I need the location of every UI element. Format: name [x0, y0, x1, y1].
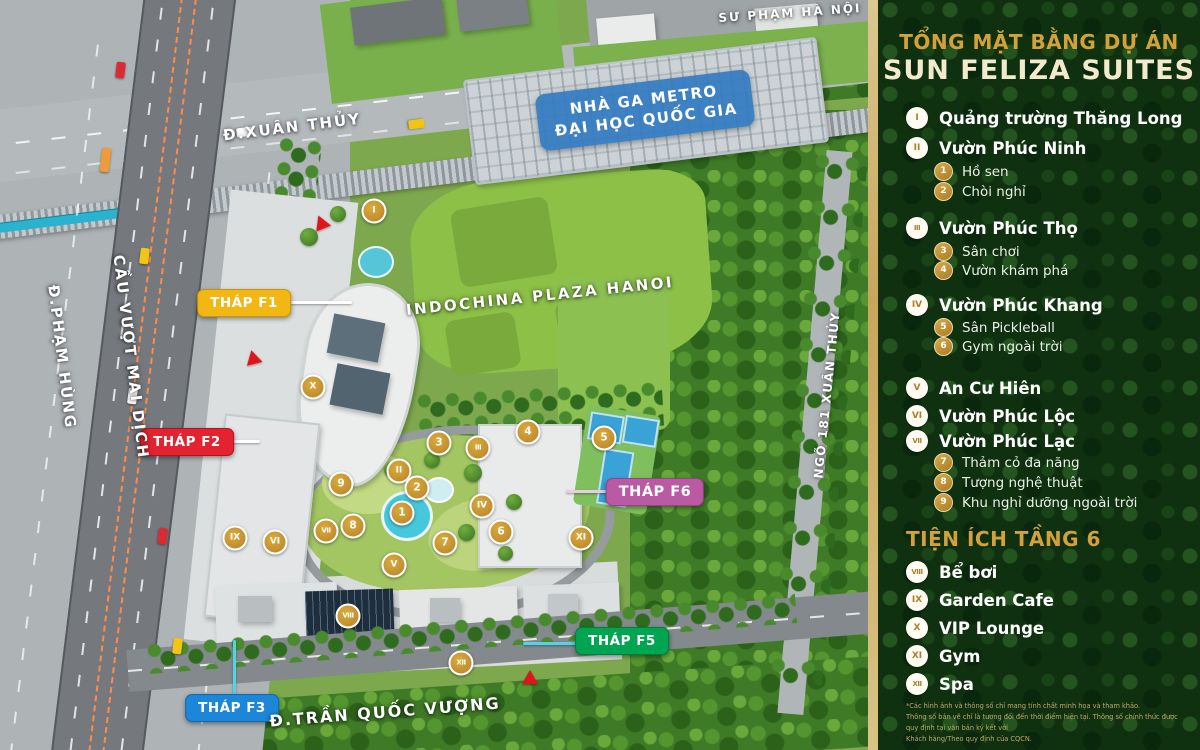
- subitem-label: Khu nghỉ dưỡng ngoài trời: [962, 495, 1137, 511]
- legend-item-IV: IV Vườn Phúc Khang: [906, 293, 1192, 317]
- car: [157, 528, 168, 545]
- legend-item-VI: VI Vườn Phúc Lộc: [906, 404, 1192, 428]
- marker-9: 9: [329, 472, 354, 497]
- legend-label: An Cư Hiên: [939, 379, 1041, 398]
- car: [408, 119, 425, 130]
- marker-III: III: [466, 436, 491, 461]
- numeral-badge: VIII: [906, 561, 928, 583]
- legend-subitem-5: 5 Sân Pickleball: [934, 318, 1192, 337]
- number-badge: 5: [934, 318, 953, 337]
- car: [172, 638, 183, 655]
- tree: [330, 206, 346, 222]
- disclaimer-line: Thông số bản vẽ chỉ là tương đối đến thờ…: [906, 712, 1184, 734]
- marker-XI: XI: [569, 526, 594, 551]
- legend-label: Vườn Phúc Lạc: [939, 432, 1075, 451]
- legend-subitem-4: 4 Vườn khám phá: [934, 261, 1192, 280]
- entrance-marker: [522, 670, 538, 684]
- tier6-item-XII: XII Spa: [906, 672, 1192, 696]
- marker-1: 1: [390, 501, 415, 526]
- roof-unit: [430, 598, 460, 622]
- number-badge: 7: [934, 453, 953, 472]
- number-badge: 6: [934, 337, 953, 356]
- numeral-badge: X: [906, 617, 928, 639]
- tier6-item-VIII: VIII Bể bơi: [906, 560, 1192, 584]
- subitem-label: Sân Pickleball: [962, 320, 1055, 336]
- label-thap-f5: THÁP F5: [575, 627, 669, 655]
- numeral-badge: IX: [906, 589, 928, 611]
- subitem-label: Gym ngoài trời: [962, 339, 1062, 355]
- numeral-badge: XII: [906, 673, 928, 695]
- label-thap-f2: THÁP F2: [140, 428, 234, 456]
- legend-item-V: V An Cư Hiên: [906, 376, 1192, 400]
- numeral-badge: VII: [906, 430, 928, 452]
- indochina-footprint: [444, 311, 522, 377]
- tower-f6-building: [478, 424, 582, 568]
- legend-subitem-2: 2 Chòi nghỉ: [934, 182, 1192, 201]
- numeral-badge: XI: [906, 645, 928, 667]
- marker-X: X: [301, 375, 326, 400]
- gold-separator: [868, 0, 878, 750]
- marker-XII: XII: [449, 651, 474, 676]
- tier6-label: Bể bơi: [939, 563, 997, 582]
- tier6-label: Spa: [939, 675, 974, 694]
- legend-item-II: II Vườn Phúc Ninh: [906, 136, 1192, 160]
- numeral-badge: V: [906, 377, 928, 399]
- legend-label: Quảng trường Thăng Long: [939, 109, 1182, 128]
- numeral-badge: II: [906, 137, 928, 159]
- number-badge: 1: [934, 162, 953, 181]
- tier6-item-XI: XI Gym: [906, 644, 1192, 668]
- number-badge: 3: [934, 242, 953, 261]
- car: [139, 248, 150, 265]
- marker-6: 6: [489, 520, 514, 545]
- marker-4: 4: [516, 420, 541, 445]
- legend-subitem-7: 7 Thảm cỏ đa năng: [934, 453, 1192, 472]
- masterplan-poster: THÁP F1 THÁP F2 THÁP F3 THÁP F5 THÁP F6 …: [0, 0, 1200, 750]
- legend-subitem-1: 1 Hồ sen: [934, 162, 1192, 181]
- panel-title: TỔNG MẶT BẰNG DỰ ÁN: [878, 30, 1200, 54]
- disclaimer-line: *Các hình ảnh và thông số chỉ mang tính …: [906, 701, 1184, 712]
- indochina-footprint: [450, 196, 559, 288]
- tier6-item-X: X VIP Lounge: [906, 616, 1192, 640]
- marker-VI: VI: [263, 530, 288, 555]
- legend-subitem-9: 9 Khu nghỉ dưỡng ngoài trời: [934, 493, 1192, 512]
- tier6-section-title: TIỆN ÍCH TẦNG 6: [906, 527, 1101, 551]
- leader-f3: [233, 640, 236, 696]
- leader-f1: [282, 301, 352, 304]
- tier6-label: Garden Cafe: [939, 591, 1054, 610]
- number-badge: 8: [934, 473, 953, 492]
- marker-VII: VII: [314, 519, 339, 544]
- subitem-label: Thảm cỏ đa năng: [962, 455, 1080, 471]
- legend-subitem-3: 3 Sân chơi: [934, 242, 1192, 261]
- marker-7: 7: [433, 531, 458, 556]
- marker-3: 3: [427, 431, 452, 456]
- label-thap-f3: THÁP F3: [185, 694, 279, 722]
- label-thap-f6: THÁP F6: [606, 478, 704, 506]
- marker-V: V: [382, 553, 407, 578]
- number-badge: 9: [934, 493, 953, 512]
- number-badge: 4: [934, 261, 953, 280]
- legend-item-I: I Quảng trường Thăng Long: [906, 106, 1192, 130]
- number-badge: 2: [934, 182, 953, 201]
- project-name: SUN FELIZA SUITES: [878, 55, 1200, 86]
- car: [115, 62, 126, 79]
- legend-subitem-8: 8 Tượng nghệ thuật: [934, 473, 1192, 492]
- legend-label: Vườn Phúc Thọ: [939, 219, 1078, 238]
- disclaimer-line: Khách hàng/Theo quy định của CQCN.: [906, 734, 1184, 745]
- pickleball-court: [622, 415, 660, 448]
- tree: [458, 524, 475, 541]
- roof-unit: [238, 596, 272, 622]
- marker-IX: IX: [223, 526, 248, 551]
- legend-panel: TỔNG MẶT BẰNG DỰ ÁN SUN FELIZA SUITES I …: [878, 0, 1200, 750]
- label-thap-f1: THÁP F1: [197, 289, 291, 317]
- subitem-label: Vườn khám phá: [962, 263, 1068, 279]
- legend-label: Vườn Phúc Lộc: [939, 407, 1075, 426]
- tier6-label: Gym: [939, 647, 981, 666]
- tier6-label: VIP Lounge: [939, 619, 1044, 638]
- marker-VIII: VIII: [336, 604, 361, 629]
- tree: [464, 464, 482, 482]
- tier6-item-IX: IX Garden Cafe: [906, 588, 1192, 612]
- subitem-label: Hồ sen: [962, 164, 1009, 180]
- leader-f5: [523, 642, 581, 645]
- numeral-badge: I: [906, 107, 928, 129]
- tree: [498, 546, 513, 561]
- numeral-badge: III: [906, 217, 928, 239]
- subitem-label: Sân chơi: [962, 244, 1020, 260]
- tree: [506, 494, 522, 510]
- numeral-badge: VI: [906, 405, 928, 427]
- legend-item-III: III Vườn Phúc Thọ: [906, 216, 1192, 240]
- legend-item-VII: VII Vườn Phúc Lạc: [906, 429, 1192, 453]
- marker-8: 8: [341, 514, 366, 539]
- subitem-label: Chòi nghỉ: [962, 184, 1026, 200]
- disclaimer: *Các hình ảnh và thông số chỉ mang tính …: [906, 701, 1184, 745]
- legend-label: Vườn Phúc Khang: [939, 296, 1103, 315]
- marker-IV: IV: [470, 494, 495, 519]
- marker-2: 2: [405, 476, 430, 501]
- marker-5: 5: [592, 426, 617, 451]
- site-map: THÁP F1 THÁP F2 THÁP F3 THÁP F5 THÁP F6 …: [0, 0, 868, 750]
- marker-I: I: [362, 199, 387, 224]
- numeral-badge: IV: [906, 294, 928, 316]
- legend-label: Vườn Phúc Ninh: [939, 139, 1086, 158]
- legend-subitem-6: 6 Gym ngoài trời: [934, 337, 1192, 356]
- plaza-pond: [358, 246, 394, 278]
- subitem-label: Tượng nghệ thuật: [962, 475, 1083, 491]
